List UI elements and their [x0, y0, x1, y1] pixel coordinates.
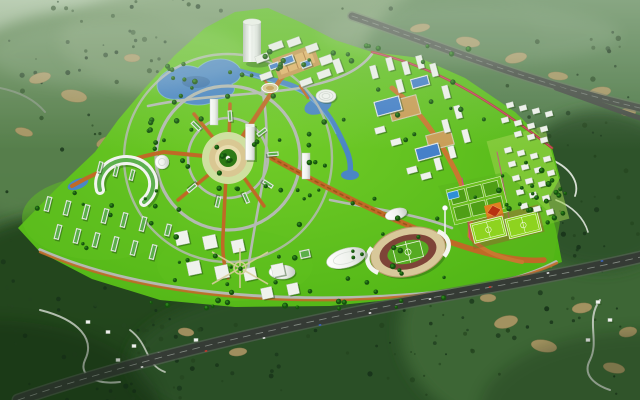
tree-highlight — [186, 258, 188, 260]
forest-dot — [435, 335, 437, 337]
forest-dot — [154, 309, 157, 312]
tree-highlight — [443, 276, 445, 278]
tree-highlight — [352, 256, 354, 258]
forest-dot — [57, 308, 60, 311]
tree — [213, 254, 218, 259]
tree — [505, 203, 509, 207]
tree-highlight — [550, 179, 552, 181]
tree — [292, 255, 298, 261]
forest-dot — [414, 353, 416, 355]
forest-dot — [122, 323, 127, 328]
tree-highlight — [308, 194, 310, 196]
tree — [211, 305, 214, 308]
tree — [273, 280, 277, 284]
forest-dot — [270, 369, 274, 373]
forest-dot — [234, 323, 238, 327]
forest-dot — [526, 325, 529, 328]
tree — [225, 282, 229, 286]
forest-dot — [136, 329, 139, 332]
forest-dot — [379, 323, 384, 328]
forest-dot — [442, 314, 444, 316]
forest-dot — [496, 333, 501, 338]
tree — [323, 164, 327, 168]
tree — [552, 215, 557, 220]
forest-dot — [160, 325, 165, 330]
tree-highlight — [298, 223, 301, 226]
tree-highlight — [154, 204, 156, 206]
building-roof — [232, 240, 244, 252]
tree-highlight — [535, 196, 537, 198]
tree-highlight — [228, 159, 230, 161]
tower-body — [302, 153, 310, 179]
tree-highlight — [235, 187, 237, 189]
tree-highlight — [279, 188, 281, 190]
forest-dot — [5, 190, 8, 193]
forest-dot — [103, 286, 107, 290]
tree-highlight — [230, 290, 233, 293]
building-south-campus — [286, 282, 301, 297]
forest-dot — [580, 200, 582, 202]
tree-highlight — [365, 281, 367, 283]
forest-dot — [594, 155, 597, 158]
tree — [530, 184, 534, 188]
tree-highlight — [178, 261, 180, 263]
tree-highlight — [181, 159, 183, 161]
tree — [346, 276, 351, 281]
tree — [342, 300, 347, 305]
tree-highlight — [221, 154, 224, 157]
tree-highlight — [373, 197, 375, 199]
tree-highlight — [303, 197, 305, 199]
forest-dot — [573, 254, 577, 258]
forest-dot — [314, 329, 318, 333]
tree — [374, 290, 379, 295]
tree-highlight — [110, 204, 112, 206]
forest-dot — [7, 304, 10, 307]
tree — [506, 206, 511, 211]
tree-highlight — [398, 269, 400, 271]
forest-dot — [269, 374, 274, 379]
forest-dot — [445, 353, 447, 355]
forest-dot — [571, 297, 575, 301]
tree-highlight — [497, 188, 500, 191]
tree-highlight — [520, 186, 522, 188]
tree-highlight — [81, 242, 83, 244]
tree-highlight — [296, 189, 298, 191]
tree — [381, 232, 385, 236]
tree-highlight — [264, 184, 266, 186]
building-roof — [107, 331, 109, 332]
tree-highlight — [398, 249, 401, 252]
tree — [524, 161, 528, 165]
forest-dot — [177, 386, 182, 391]
tree-highlight — [274, 281, 276, 283]
forest-dot — [576, 248, 579, 251]
tree — [534, 195, 539, 200]
tree-highlight — [417, 235, 419, 237]
pond-south — [341, 170, 359, 180]
forest-dot — [461, 316, 464, 319]
forest-dot — [425, 394, 427, 396]
forest-dot — [230, 371, 234, 375]
forest-dot — [10, 239, 12, 241]
tree-highlight — [337, 299, 340, 302]
forest-dot — [346, 351, 349, 354]
tree — [307, 160, 313, 166]
tree — [153, 204, 158, 209]
tree-highlight — [351, 202, 353, 204]
tree-highlight — [547, 182, 550, 185]
forest-dot — [387, 377, 390, 380]
tree — [84, 246, 88, 250]
tree-highlight — [351, 250, 353, 252]
forest-dot — [174, 335, 178, 339]
forest-dot — [429, 322, 433, 326]
masterplan-rendering: Bird's-eye 3D rendering of a planned cam… — [0, 0, 640, 400]
tree — [531, 192, 534, 195]
tree — [277, 255, 281, 259]
tree — [296, 306, 300, 310]
tree — [336, 299, 342, 305]
tree — [365, 280, 370, 285]
forest-dot — [544, 306, 549, 311]
forest-dot — [159, 337, 164, 342]
tree-highlight — [525, 161, 527, 163]
forest-dot — [463, 332, 467, 336]
forest-dot — [429, 305, 431, 307]
tree-highlight — [396, 216, 399, 219]
tree — [558, 187, 562, 191]
tree — [539, 168, 545, 174]
tree — [554, 190, 559, 195]
tree — [351, 250, 354, 253]
tree-highlight — [218, 171, 221, 174]
forest-dot — [578, 317, 581, 320]
tree-highlight — [144, 197, 146, 199]
forest-dot — [137, 351, 140, 354]
tree-highlight — [518, 203, 520, 205]
tree — [165, 302, 171, 308]
tree-highlight — [501, 174, 503, 176]
forest-dot — [280, 389, 282, 391]
forest-dot — [624, 168, 629, 173]
building-south-campus — [202, 234, 219, 251]
forest-dot — [277, 364, 281, 368]
building-roof — [262, 288, 273, 299]
tree — [441, 295, 446, 300]
forest-dot — [12, 279, 15, 282]
forest-dot — [630, 222, 634, 226]
building-roof — [215, 265, 228, 278]
tree-highlight — [205, 306, 208, 309]
building-roof — [133, 345, 135, 346]
forest-dot — [56, 297, 61, 302]
tree-highlight — [531, 192, 533, 194]
tree-highlight — [374, 290, 376, 292]
tree-highlight — [323, 164, 325, 166]
tree-highlight — [308, 290, 310, 292]
tree — [313, 160, 317, 164]
building-roof — [203, 235, 216, 248]
building-roof — [272, 264, 284, 276]
tree-highlight — [564, 192, 566, 194]
tree-highlight — [531, 184, 533, 186]
forest-dot — [561, 232, 566, 237]
tree-highlight — [554, 190, 557, 193]
tree — [185, 164, 190, 169]
tree — [225, 300, 230, 305]
tree — [399, 299, 403, 303]
forest-dot — [512, 336, 517, 341]
tree-highlight — [73, 191, 75, 193]
tree — [528, 207, 533, 212]
tree — [360, 252, 364, 256]
tree — [149, 221, 154, 226]
forest-dot — [594, 207, 599, 212]
tree — [544, 199, 549, 204]
tree-highlight — [213, 254, 216, 257]
tree-highlight — [150, 301, 152, 303]
tree — [435, 217, 439, 221]
tree — [238, 266, 243, 271]
forest-dot — [5, 286, 9, 290]
tree — [173, 234, 179, 240]
tree-highlight — [226, 283, 228, 285]
forest-dot — [594, 196, 596, 198]
tree-highlight — [226, 301, 229, 304]
forest-dot — [29, 298, 33, 302]
tree — [303, 197, 306, 200]
tree — [317, 189, 320, 192]
building-plaza-radial — [266, 152, 279, 158]
tree-highlight — [109, 213, 111, 215]
tree-highlight — [293, 256, 296, 259]
tree-highlight — [381, 233, 383, 235]
forest-dot — [45, 282, 47, 284]
forest-dot — [550, 320, 554, 324]
building-south-campus — [271, 263, 287, 279]
forest-dot — [10, 305, 14, 309]
tree — [35, 206, 40, 211]
forest-dot — [410, 377, 415, 382]
water-tower-ball — [442, 205, 447, 210]
tree-highlight — [307, 160, 310, 163]
tree-highlight — [230, 266, 232, 268]
tree — [550, 178, 555, 183]
forest-dot — [439, 363, 442, 366]
forest-dot — [367, 371, 372, 376]
forest-dot — [180, 375, 185, 380]
tree — [73, 191, 77, 195]
tree-highlight — [186, 165, 188, 167]
tree — [176, 207, 181, 212]
forest-dot — [152, 324, 155, 327]
tree — [297, 222, 302, 227]
tree-highlight — [155, 189, 157, 191]
forest-dot — [573, 234, 576, 237]
forest-dot — [433, 341, 437, 345]
tree — [390, 263, 396, 269]
tree-highlight — [400, 299, 402, 301]
tree — [227, 158, 232, 163]
tree-highlight — [337, 307, 339, 309]
tree-highlight — [166, 303, 169, 306]
building-roof — [597, 301, 599, 302]
forest-dot — [572, 319, 575, 322]
tree-highlight — [211, 305, 213, 307]
tree-highlight — [546, 221, 548, 223]
tree-highlight — [177, 208, 179, 210]
tree — [282, 303, 288, 309]
tree — [546, 220, 550, 224]
building-roof — [87, 321, 89, 322]
masterplan-svg: Bird's-eye 3D rendering of a planned cam… — [0, 0, 640, 400]
forest-dot — [1, 259, 6, 264]
building-roof — [195, 339, 197, 340]
tree — [496, 188, 502, 194]
building-roof — [288, 284, 299, 295]
tree — [308, 289, 313, 294]
tree-highlight — [395, 306, 397, 308]
tree — [204, 305, 209, 310]
tree — [308, 193, 312, 197]
tree — [518, 202, 522, 206]
tree — [337, 306, 341, 310]
tree-highlight — [150, 222, 152, 224]
forest-dot — [173, 386, 175, 388]
tree-highlight — [400, 272, 402, 274]
tree — [278, 188, 283, 193]
tree-highlight — [36, 206, 38, 208]
golf-bunker — [480, 294, 496, 302]
tree-highlight — [85, 246, 87, 248]
tree-highlight — [436, 217, 438, 219]
mist-patch-1 — [0, 20, 250, 90]
forest-dot — [506, 328, 510, 332]
tree-highlight — [505, 203, 507, 205]
tree-highlight — [442, 296, 445, 299]
tree-highlight — [507, 207, 510, 210]
tree-highlight — [540, 168, 543, 171]
tree-highlight — [392, 246, 395, 249]
forest-dot — [375, 345, 378, 348]
tree-highlight — [317, 189, 319, 191]
tree — [264, 184, 268, 188]
tree — [501, 174, 504, 177]
forest-dot — [583, 232, 587, 236]
mist-patch-2 — [320, 5, 620, 65]
tree-highlight — [239, 267, 241, 269]
forest-dot — [93, 302, 98, 307]
forest-dot — [151, 319, 155, 323]
tree — [144, 197, 147, 200]
forest-dot — [146, 329, 149, 332]
forest-dot — [410, 351, 412, 353]
tree-highlight — [342, 300, 345, 303]
forest-dot — [603, 245, 605, 247]
tree-highlight — [529, 208, 532, 211]
tree-highlight — [277, 255, 279, 257]
tree — [395, 215, 401, 221]
forest-dot — [469, 299, 474, 304]
tree — [397, 268, 401, 272]
forest-dot — [566, 308, 568, 310]
forest-dot — [394, 353, 396, 355]
tree — [155, 189, 158, 192]
forest-dot — [538, 290, 543, 295]
tree — [416, 235, 420, 239]
tree-highlight — [360, 253, 362, 255]
tree-highlight — [391, 264, 394, 267]
tree — [217, 186, 222, 191]
tree — [561, 211, 566, 216]
tree — [229, 290, 234, 295]
tree-highlight — [346, 277, 348, 279]
tree-highlight — [173, 278, 175, 280]
forest-dot — [142, 328, 147, 333]
tree — [108, 213, 113, 218]
building-roof — [187, 261, 200, 274]
tree — [398, 248, 404, 254]
forest-dot — [616, 307, 618, 309]
tree-highlight — [82, 203, 84, 205]
tree — [81, 242, 84, 245]
tree — [373, 197, 377, 201]
forest-dot — [191, 359, 195, 363]
tree — [150, 301, 153, 304]
forest-dot — [221, 380, 223, 382]
forest-dot — [471, 349, 475, 353]
forest-dot — [215, 363, 219, 367]
tree — [235, 187, 239, 191]
tree — [215, 298, 221, 304]
forest-dot — [178, 396, 181, 399]
east-tower — [302, 153, 310, 179]
tree — [395, 306, 398, 309]
forest-dot — [636, 232, 640, 236]
forest-dot — [275, 353, 279, 357]
tree — [109, 203, 114, 208]
tree — [442, 276, 445, 279]
building-south-campus — [260, 286, 275, 301]
tree — [82, 203, 85, 206]
forest-dot — [306, 334, 310, 338]
forest-dot — [562, 222, 564, 224]
tree-highlight — [283, 303, 286, 306]
tree-highlight — [217, 186, 220, 189]
tree-highlight — [314, 160, 316, 162]
forest-dot — [190, 366, 195, 371]
forest-dot — [466, 329, 469, 332]
forest-dot — [389, 342, 391, 344]
tree — [186, 258, 190, 262]
tree — [217, 170, 222, 175]
tree — [564, 192, 567, 195]
tree — [351, 256, 355, 260]
tree — [229, 265, 232, 268]
building-south-campus — [186, 260, 203, 277]
tree — [520, 186, 524, 190]
tree-highlight — [559, 188, 561, 190]
forest-dot — [619, 326, 621, 328]
tree-highlight — [474, 196, 476, 198]
forest-dot — [169, 318, 171, 320]
forest-dot — [616, 196, 620, 200]
tree-highlight — [174, 235, 177, 238]
forest-dot — [594, 318, 597, 321]
tree-highlight — [561, 211, 563, 213]
tree — [391, 245, 396, 250]
